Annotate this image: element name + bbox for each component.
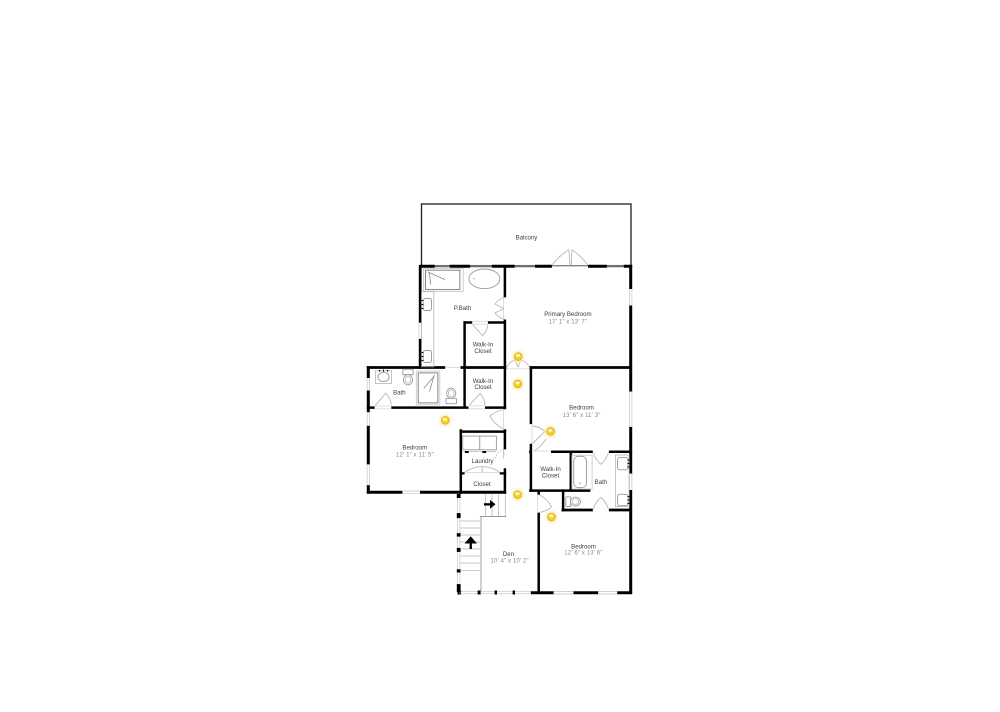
svg-text:Closet: Closet: [474, 348, 492, 355]
svg-text:P.Bath: P.Bath: [454, 305, 472, 312]
svg-text:13’ 6” x 11’ 3”: 13’ 6” x 11’ 3”: [563, 412, 601, 419]
svg-text:Bedroom: Bedroom: [569, 404, 594, 411]
svg-text:10’ 4” x 10’ 2”: 10’ 4” x 10’ 2”: [490, 558, 528, 565]
svg-text:Closet: Closet: [542, 473, 560, 480]
svg-text:12’ 6” x 13’ 6”: 12’ 6” x 13’ 6”: [564, 550, 602, 557]
svg-text:Bath: Bath: [595, 479, 608, 486]
svg-text:Laundry: Laundry: [472, 458, 495, 465]
svg-text:17’ 1” x 13’ 7”: 17’ 1” x 13’ 7”: [549, 319, 587, 326]
svg-text:Balcony: Balcony: [516, 235, 539, 242]
svg-text:Primary Bedroom: Primary Bedroom: [544, 311, 591, 318]
svg-text:Bath: Bath: [393, 390, 406, 397]
svg-text:Bedroom: Bedroom: [402, 444, 427, 451]
svg-text:12’ 1” x 11’ 5”: 12’ 1” x 11’ 5”: [396, 451, 434, 458]
svg-text:Closet: Closet: [474, 384, 492, 391]
svg-text:Closet: Closet: [473, 481, 491, 488]
